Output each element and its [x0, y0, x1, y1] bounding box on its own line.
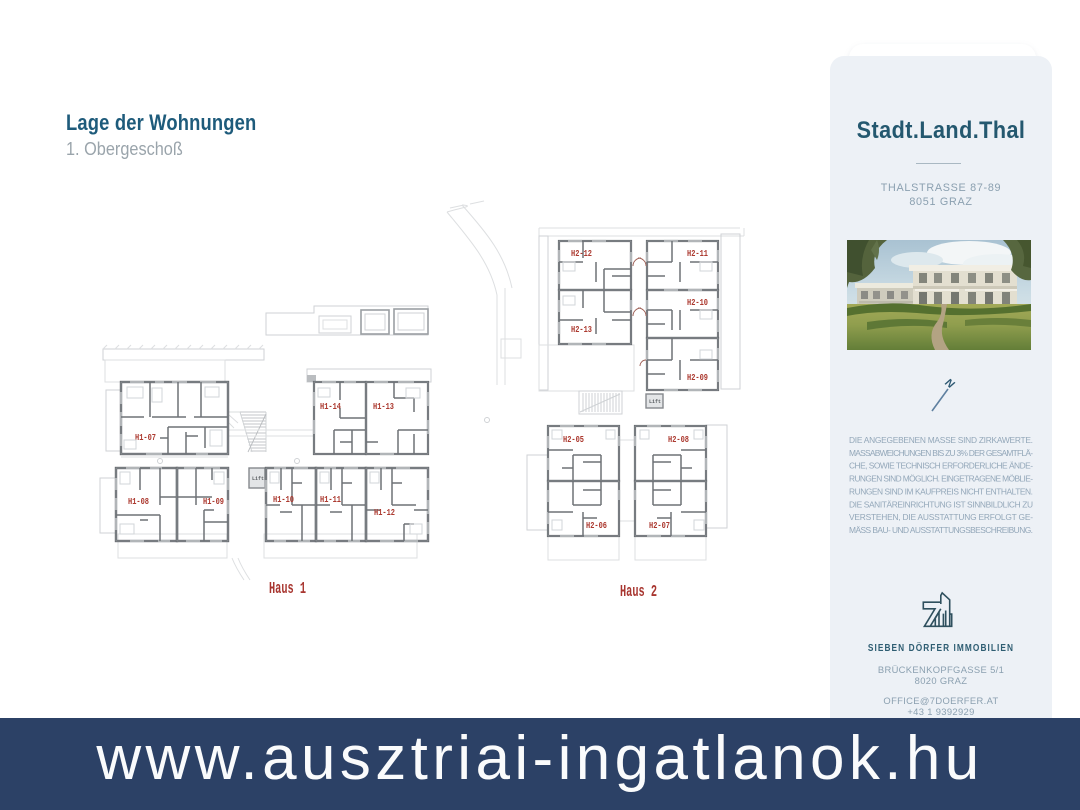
svg-text:H2-12: H2-12	[571, 249, 592, 259]
svg-text:Haus 1: Haus 1	[269, 580, 306, 599]
svg-text:VERSTEHEN, DIE AUSSTATTUNG ERF: VERSTEHEN, DIE AUSSTATTUNG ERFOLGT GE-	[849, 512, 1033, 522]
svg-text:H1-07: H1-07	[135, 433, 156, 443]
svg-text:H1-11: H1-11	[320, 495, 341, 505]
svg-text:H2-08: H2-08	[668, 435, 689, 445]
svg-text:H2-09: H2-09	[687, 373, 708, 383]
svg-text:H2-06: H2-06	[586, 521, 607, 531]
svg-text:RUNGEN SIND MÖGLICH. EINGETRAG: RUNGEN SIND MÖGLICH. EINGETRAGENE MÖBLIE…	[849, 474, 1033, 484]
svg-text:H2-05: H2-05	[563, 435, 584, 445]
svg-text:DIE SANITÄREINRICHTUNG IST SIN: DIE SANITÄREINRICHTUNG IST SINNBILDLICH …	[849, 499, 1033, 509]
svg-text:CHE, SOWIE TECHNISCH ERFORDERL: CHE, SOWIE TECHNISCH ERFORDERLICHE ÄNDE-	[849, 461, 1033, 471]
svg-text:H1-14: H1-14	[320, 402, 341, 412]
svg-text:H2-07: H2-07	[649, 521, 670, 531]
svg-text:H2-13: H2-13	[571, 325, 592, 335]
svg-text:DIE ANGEGEBENEN MASSE SIND ZIR: DIE ANGEGEBENEN MASSE SIND ZIRKAWERTE.	[849, 435, 1033, 445]
svg-text:H2-10: H2-10	[687, 298, 708, 308]
svg-text:Haus 2: Haus 2	[620, 583, 657, 602]
svg-text:N: N	[943, 377, 957, 392]
svg-text:H1-09: H1-09	[203, 497, 224, 507]
svg-text:H1-12: H1-12	[374, 508, 395, 518]
svg-text:Lift: Lift	[252, 476, 264, 482]
svg-text:H1-13: H1-13	[373, 402, 394, 412]
svg-text:Lift: Lift	[649, 399, 661, 405]
svg-text:RUNGEN SIND IM KAUFPREIS NICHT: RUNGEN SIND IM KAUFPREIS NICHT ENTHALTEN…	[849, 486, 1033, 496]
svg-text:H2-11: H2-11	[687, 249, 708, 259]
svg-text:MÄSS BAU- UND AUSSTATTUNGSBESC: MÄSS BAU- UND AUSSTATTUNGSBESCHREIBUNG.	[849, 525, 1033, 535]
svg-text:H1-10: H1-10	[273, 495, 294, 505]
svg-text:H1-08: H1-08	[128, 497, 149, 507]
svg-text:MASSABWEICHUNGEN BIS ZU 3% DER: MASSABWEICHUNGEN BIS ZU 3% DER GESAMTFLÄ…	[849, 448, 1033, 458]
